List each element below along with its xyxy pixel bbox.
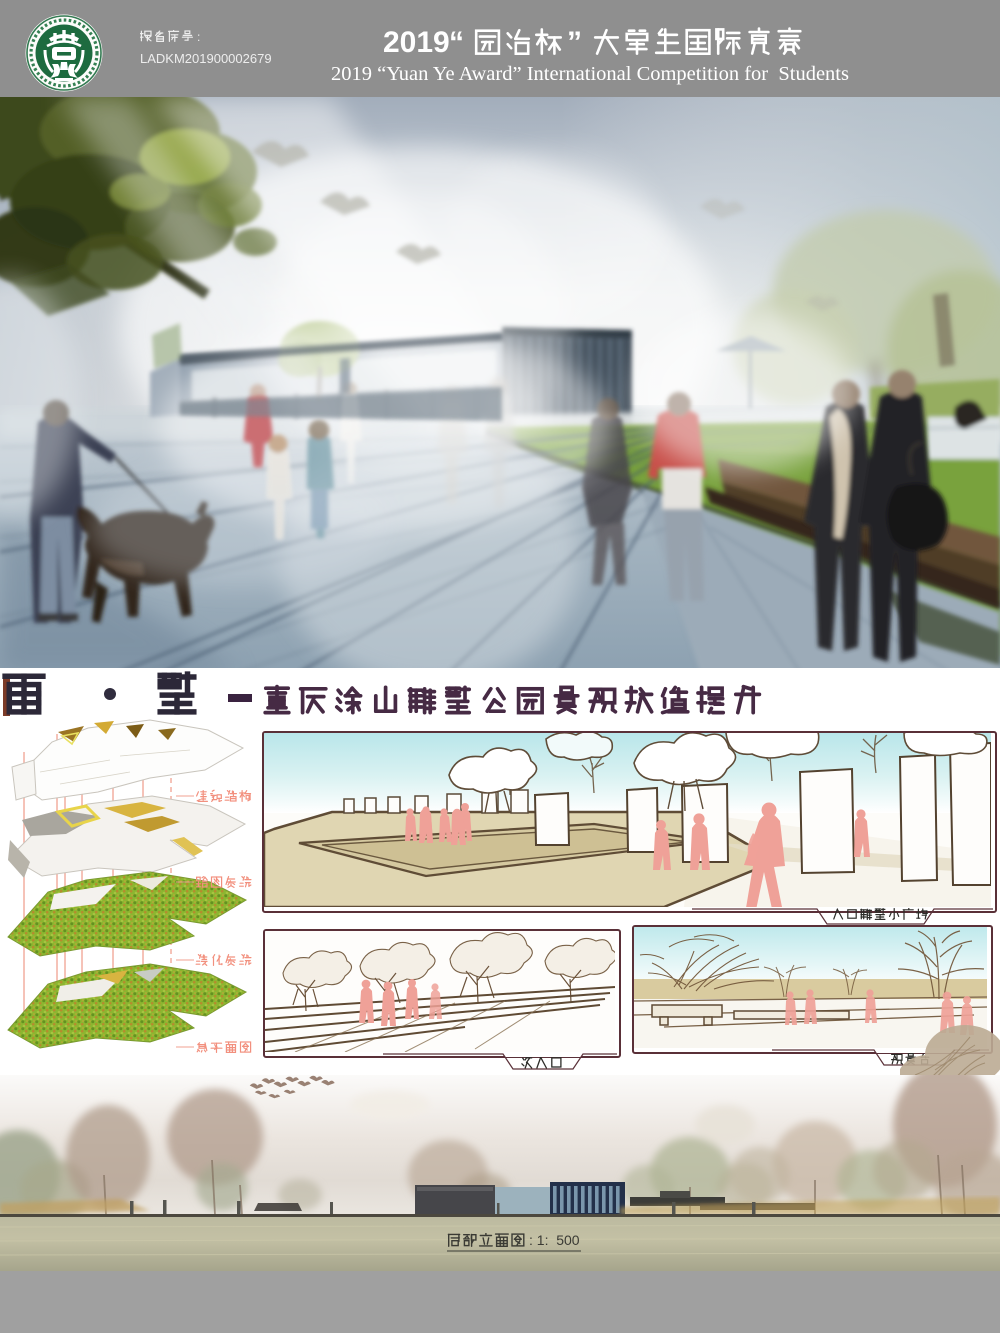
svg-text:2019: 2019 [383,27,450,59]
svg-text:“: “ [449,27,464,59]
svg-text:: 1: 500: : 1: 500 [529,1233,580,1248]
svg-text::: : [197,30,200,44]
svg-text:”: ” [567,27,582,59]
